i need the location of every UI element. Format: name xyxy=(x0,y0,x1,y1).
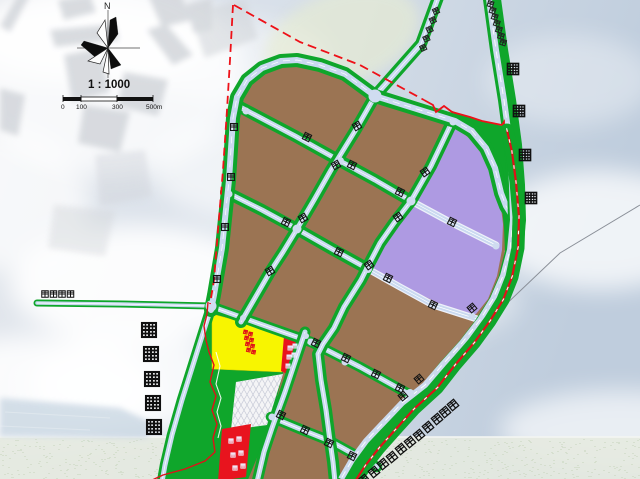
svg-text:500m: 500m xyxy=(146,104,162,111)
svg-text:300: 300 xyxy=(112,104,123,111)
svg-text:0: 0 xyxy=(61,104,65,111)
svg-text:100: 100 xyxy=(76,104,87,111)
svg-text:1 : 1000: 1 : 1000 xyxy=(88,79,130,91)
svg-text:N: N xyxy=(104,1,111,11)
